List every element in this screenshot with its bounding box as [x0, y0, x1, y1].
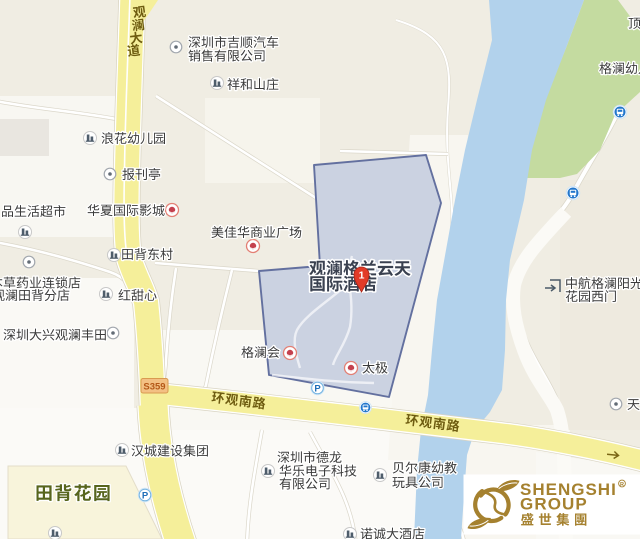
svg-text:S359: S359 [143, 382, 165, 393]
svg-text:P: P [314, 383, 321, 394]
svg-text:1: 1 [359, 270, 365, 282]
svg-text:GROUP: GROUP [520, 495, 588, 514]
svg-text:P: P [142, 490, 149, 501]
svg-text:R: R [620, 482, 624, 488]
